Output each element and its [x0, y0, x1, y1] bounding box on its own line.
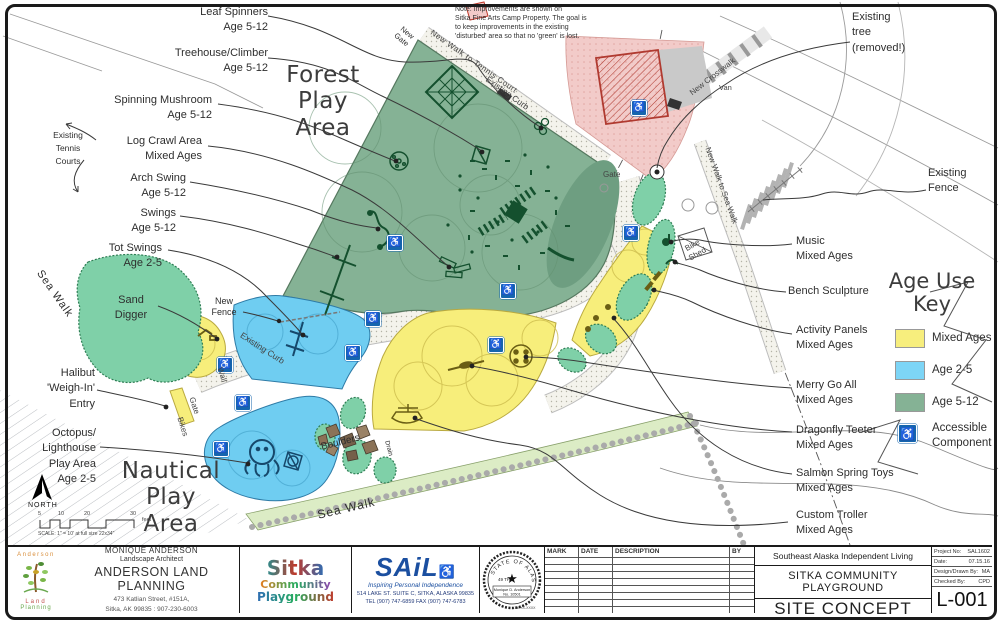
scale-tick: 20 — [84, 511, 90, 517]
accessible-icon — [387, 235, 403, 251]
existing-fence-line — [748, 167, 802, 212]
scale-caption: SCALE: 1" = 10' at full size 22x34" — [38, 531, 114, 537]
plan-note: Note: Improvements are shown onSitka Fin… — [455, 5, 615, 41]
label-music: MusicMixed Ages — [796, 234, 853, 265]
label-treehouse-climber: Treehouse/ClimberAge 5-12 — [118, 46, 268, 77]
rev-header-mark: MARK — [545, 547, 579, 557]
tree-logo-icon — [19, 558, 53, 594]
scale-tick: 30 — [130, 511, 136, 517]
anderson-land-planning-block: Anderson Land Planning MONIQUE ANDERSON … — [8, 547, 240, 613]
label-gate: Gate — [603, 170, 620, 179]
nautical-play-area-title: NauticalPlayArea — [106, 458, 236, 537]
firm-name: ANDERSON LAND PLANNING — [64, 565, 239, 593]
checked-by-field: Checked By:CPD — [932, 577, 992, 587]
accessible-icon — [213, 441, 229, 457]
label-activity-panels: Activity PanelsMixed Ages — [796, 323, 868, 354]
sheet-number: L-001 — [932, 587, 992, 613]
rev-row — [545, 600, 754, 607]
accessible-icon — [365, 311, 381, 327]
rev-row — [545, 579, 754, 586]
label-sand-digger: SandDigger — [105, 293, 157, 324]
sheet-title: SITE CONCEPT LAYOUT — [755, 599, 931, 621]
site-plan-sheet: Note: Improvements are shown onSitka Fin… — [0, 0, 1000, 621]
sail-address: 514 LAKE ST. SUITE C, SITKA, ALASKA 9983… — [352, 591, 479, 606]
label-swings: SwingsAge 5-12 — [26, 206, 176, 237]
label-octopus-lighthouse: Octopus/LighthousePlay AreaAge 2-5 — [14, 426, 96, 488]
label-leaf-spinners: Leaf SpinnersAge 5-12 — [118, 5, 268, 36]
svg-text:49 TH: 49 TH — [498, 577, 510, 582]
rev-row — [545, 586, 754, 593]
architect-role: Landscape Architect — [64, 556, 239, 563]
rev-row — [545, 565, 754, 572]
accessible-icon — [345, 345, 361, 361]
accessible-icon — [500, 283, 516, 299]
label-arch-swing: Arch SwingAge 5-12 — [36, 171, 186, 202]
client-name: Southeast Alaska Independent Living — [755, 547, 931, 566]
state-seal-icon: STATE OF ALASKA ★ 49 TH Monique D. Ander… — [481, 549, 543, 611]
label-van: Van — [719, 83, 732, 92]
label-existing-fence: ExistingFence — [928, 166, 967, 197]
svg-text:No. 10501: No. 10501 — [503, 593, 521, 597]
sitka-playground-logo: Sitka Community Playground — [240, 547, 352, 613]
sail-logo: SAiL♿ — [352, 554, 479, 580]
svg-text:XX-XX-XXXX: XX-XX-XXXX — [514, 606, 536, 610]
label-existing-tree: Existingtree(removed!) — [852, 10, 905, 56]
label-spinning-mushroom: Spinning MushroomAge 5-12 — [62, 93, 212, 124]
rev-header-by: BY — [730, 547, 754, 557]
wheelchair-icon: ♿ — [439, 564, 456, 579]
title-block: Anderson Land Planning MONIQUE ANDERSON … — [8, 545, 992, 613]
rev-row — [545, 572, 754, 579]
date-field: Date:07.15.16 — [932, 557, 992, 567]
rev-row — [545, 558, 754, 565]
revision-table: MARK DATE DESCRIPTION BY — [545, 547, 755, 613]
scale-unit: feet — [142, 517, 151, 523]
drawn-by-field: Design/Drawn By:MA — [932, 567, 992, 577]
rev-row — [545, 607, 754, 613]
legend-accessible-icon — [898, 424, 917, 443]
sail-tagline: Inspiring Personal Independence — [352, 582, 479, 589]
project-name: SITKA COMMUNITY PLAYGROUND — [755, 566, 931, 599]
accessible-icon — [623, 225, 639, 241]
project-title-block: Southeast Alaska Independent Living SITK… — [755, 547, 932, 613]
label-custom-troller: Custom TrollerMixed Ages — [796, 508, 868, 539]
label-existing-tennis-courts: ExistingTennisCourts — [28, 129, 108, 167]
accessible-icon — [235, 395, 251, 411]
rev-header-description: DESCRIPTION — [613, 547, 730, 557]
label-halibut-entry: Halibut'Weigh-In'Entry — [20, 366, 95, 412]
accessible-icon — [631, 100, 647, 116]
label-tot-swings: Tot SwingsAge 2-5 — [12, 241, 162, 272]
architect-name: MONIQUE ANDERSON — [64, 546, 239, 555]
scale-tick: 5 — [38, 511, 41, 517]
forest-play-area-title: ForestPlayArea — [258, 62, 388, 141]
firm-address: 473 Katlian Street, #151A,Sitka, AK 9983… — [64, 595, 239, 613]
project-no-field: Project No:SAL1602 — [932, 547, 992, 557]
rev-header-date: DATE — [579, 547, 613, 557]
architect-seal-block: STATE OF ALASKA ★ 49 TH Monique D. Ander… — [480, 547, 545, 613]
sheet-info-block: Project No:SAL1602 Date:07.15.16 Design/… — [932, 547, 992, 613]
anderson-logo: Anderson Land Planning — [8, 550, 64, 611]
accessible-icon — [488, 337, 504, 353]
scale-tick: 10 — [58, 511, 64, 517]
label-new-fence: NewFence — [203, 296, 245, 319]
label-bench-sculpture: Bench Sculpture — [788, 284, 869, 299]
legend-title: Age UseKey — [876, 270, 988, 316]
label-merry-go-all: Merry Go AllMixed Ages — [796, 378, 857, 409]
sail-block: SAiL♿ Inspiring Personal Independence 51… — [352, 547, 480, 613]
svg-text:Monique D. Anderson: Monique D. Anderson — [494, 588, 531, 592]
north-label: NORTH — [28, 502, 58, 509]
label-dragonfly-teeter: Dragonfly TeeterMixed Ages — [796, 423, 877, 454]
label-salmon-spring-toys: Salmon Spring ToysMixed Ages — [796, 466, 894, 497]
rev-row — [545, 593, 754, 600]
